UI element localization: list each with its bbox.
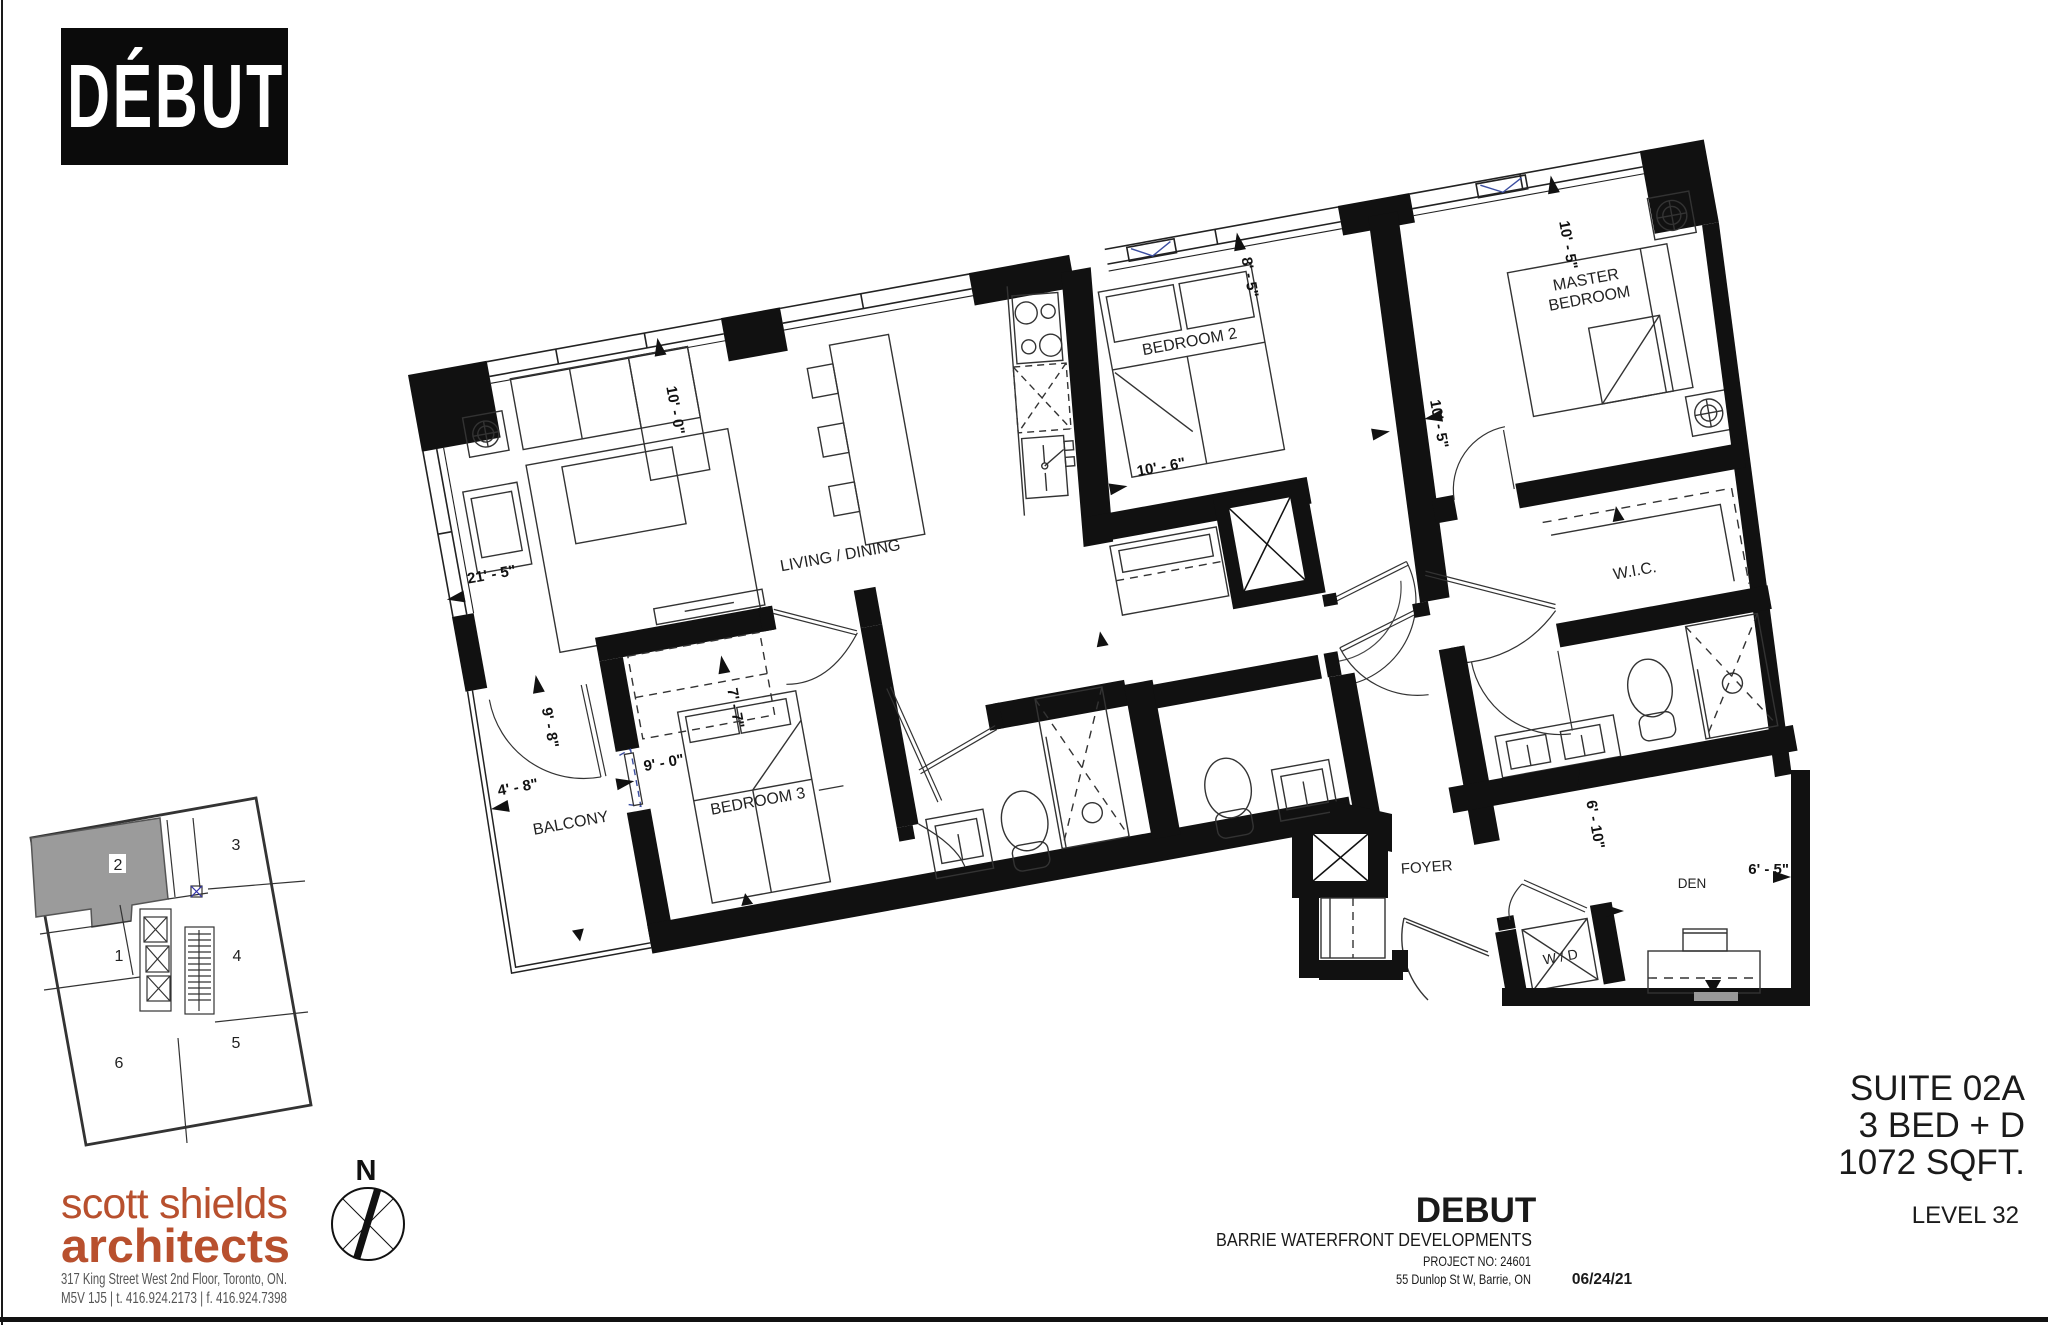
svg-text:M5V 1J5 | t. 416.924.2173: M5V 1J5 | t. 416.924.2173 | f. 416.924.7… xyxy=(61,1290,287,1307)
svg-text:W.I.C.: W.I.C. xyxy=(1612,559,1658,584)
svg-text:9' - 8": 9' - 8" xyxy=(538,706,562,749)
svg-text:55 Dunlop St W, Barrie, ON: 55 Dunlop St W, Barrie, ON xyxy=(1396,1271,1531,1287)
svg-text:N: N xyxy=(356,1155,377,1187)
svg-text:2: 2 xyxy=(114,857,123,874)
svg-text:8' - 5": 8' - 5" xyxy=(1238,256,1262,299)
svg-text:4' - 8": 4' - 8" xyxy=(496,775,539,799)
svg-text:3 BED + D: 3 BED + D xyxy=(1859,1106,2025,1145)
svg-text:BALCONY: BALCONY xyxy=(532,808,611,838)
svg-text:PROJECT NO: 24601: PROJECT NO: 24601 xyxy=(1423,1253,1531,1269)
svg-text:1: 1 xyxy=(115,948,124,965)
svg-text:BEDROOM 2: BEDROOM 2 xyxy=(1141,325,1239,359)
svg-text:9' - 0": 9' - 0" xyxy=(642,751,685,775)
svg-text:6' - 10": 6' - 10" xyxy=(1582,799,1607,850)
svg-text:4: 4 xyxy=(233,948,242,965)
svg-text:LEVEL 32: LEVEL 32 xyxy=(1912,1202,2019,1229)
svg-text:6: 6 xyxy=(115,1055,124,1072)
svg-text:W / D: W / D xyxy=(1542,946,1579,968)
svg-text:10' - 0": 10' - 0" xyxy=(662,385,687,436)
svg-text:DÉBUT: DÉBUT xyxy=(67,47,285,147)
svg-text:3: 3 xyxy=(232,837,241,854)
svg-text:BEDROOM 3: BEDROOM 3 xyxy=(709,785,807,819)
svg-text:DEBUT: DEBUT xyxy=(1416,1191,1537,1230)
svg-text:5: 5 xyxy=(232,1035,241,1052)
svg-text:21' - 5": 21' - 5" xyxy=(466,562,517,587)
svg-text:317 King Street West 2nd Floor: 317 King Street West 2nd Floor, Toronto,… xyxy=(61,1271,287,1288)
svg-text:1072 SQFT.: 1072 SQFT. xyxy=(1838,1143,2025,1182)
svg-text:06/24/21: 06/24/21 xyxy=(1572,1271,1633,1288)
svg-text:architects: architects xyxy=(61,1219,290,1272)
svg-text:FOYER: FOYER xyxy=(1400,857,1453,878)
svg-text:BARRIE WATERFRONT DEVELOPMENTS: BARRIE WATERFRONT DEVELOPMENTS xyxy=(1216,1230,1532,1250)
svg-text:10' - 5": 10' - 5" xyxy=(1426,398,1451,449)
svg-text:DEN: DEN xyxy=(1678,876,1707,891)
svg-text:LIVING / DINING: LIVING / DINING xyxy=(779,537,902,576)
svg-text:10' - 6": 10' - 6" xyxy=(1136,455,1187,480)
svg-text:SUITE 02A: SUITE 02A xyxy=(1850,1069,2026,1108)
